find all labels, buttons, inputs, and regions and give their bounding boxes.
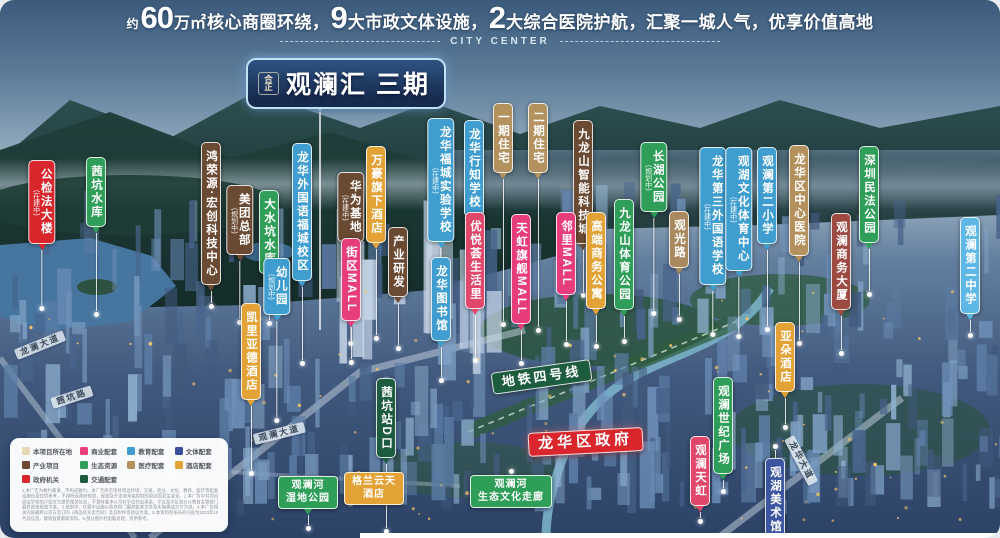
map-pin-longhua-fucheng-school: 龙华福城实验学校(在建中) <box>427 118 454 265</box>
anchor-dot-icon <box>783 425 788 430</box>
map-pin-longhua-foreign-lang-fucheng: 龙华外国语福城校区 <box>292 143 312 367</box>
map-label-rainbow-flagship-mall: 天虹旗舰MALL <box>511 214 531 324</box>
map-pin-guanhu-culture-sports-center: 观湖文化体育中心(在建中) <box>725 147 752 340</box>
headline-seg-6: 2 <box>489 2 505 33</box>
map-label-youyuehui-life: 优悦荟生活里 <box>465 212 485 309</box>
legend-label: 生态资源 <box>91 460 117 470</box>
map-label-guanlan-business-tower: 观澜商务大厦 <box>831 213 851 310</box>
legend-label: 教育配套 <box>138 446 164 456</box>
legend-item-3: 文体配套 <box>175 446 218 456</box>
anchor-dot-icon <box>968 333 973 338</box>
map-label-block-mall: 街区MALL <box>341 238 361 321</box>
map-label-qiankeng-station-exit-d: 茜坑站D口 <box>376 378 396 458</box>
leader-line <box>251 406 252 470</box>
map-label-kindergarten: 幼儿园(规划中) <box>263 258 290 315</box>
legend-label: 本项目所在地 <box>33 446 72 456</box>
leader-line <box>351 327 352 359</box>
legend-item-0: 本项目所在地 <box>22 446 76 456</box>
leader-line <box>799 262 800 340</box>
bottom-strip <box>360 533 1000 538</box>
map-label-changhu-park: 长湖公园(规划中) <box>640 142 667 212</box>
banner-leader-line <box>319 112 321 330</box>
map-label-qiankeng-reservoir: 茜坑水库 <box>86 157 106 227</box>
anchor-dot-icon <box>737 334 742 339</box>
legend-label: 交通配套 <box>91 474 117 484</box>
anchor-dot-icon <box>564 342 569 347</box>
aerial-map: 约60万㎡核心商圈环绕，9大市政文体设施，2大综合医院护航，汇聚一城人气，优享价… <box>0 0 1000 538</box>
anchor-dot-icon <box>396 346 401 351</box>
leader-line <box>441 347 442 377</box>
legend-item-6: 医疗配套 <box>127 460 170 470</box>
anchor-dot-icon <box>765 327 770 332</box>
map-pin-rainbow-flagship-mall: 天虹旗舰MALL <box>511 214 531 367</box>
headline-seg-5: 大市政文体设施， <box>348 8 488 33</box>
anchor-dot-icon <box>209 304 214 309</box>
legend-item-5: 生态资源 <box>80 460 123 470</box>
leader-line <box>583 250 584 292</box>
anchor-dot-icon <box>698 519 703 524</box>
headline-seg-1: 60 <box>141 2 173 33</box>
legend-label: 政府机关 <box>33 474 59 484</box>
leader-line <box>42 250 43 305</box>
map-label-meituan-hq: 美团总部(规划中) <box>226 185 253 255</box>
legend-label: 医疗配套 <box>138 460 164 470</box>
leader-line <box>503 179 504 321</box>
leader-line <box>775 450 776 458</box>
headline-seg-3: 核心商圈环绕， <box>207 8 330 33</box>
leader-line <box>970 320 971 332</box>
legend-panel: 本项目所在地商业配套教育配套文体配套产业项目生态资源医疗配套酒店配套政府机关交通… <box>10 438 228 532</box>
map-label-guanhu-art-museum: 观湖美术馆 <box>765 458 785 538</box>
legend-swatch-icon <box>22 475 30 483</box>
legend-swatch-icon <box>80 447 88 455</box>
headline: 约60万㎡核心商圈环绕，9大市政文体设施，2大综合医院护航，汇聚一城人气，优享价… <box>0 2 1000 33</box>
legend-item-2: 教育配套 <box>127 446 170 456</box>
anchor-dot-icon <box>519 361 524 366</box>
map-label-guanlan-2nd-middle: 观澜第二中学 <box>960 217 980 314</box>
map-label-shenzhen-minfa-park: 深圳民法公园 <box>859 146 879 243</box>
anchor-dot-icon <box>711 332 716 337</box>
anchor-dot-icon <box>797 341 802 346</box>
anchor-dot-icon <box>773 444 778 449</box>
leader-line <box>376 249 377 335</box>
headline-seg-4: 9 <box>331 2 347 33</box>
leader-line <box>96 233 97 311</box>
anchor-dot-icon <box>509 469 514 474</box>
map-label-kyriad-hotel: 凯里亚德酒店 <box>241 303 261 400</box>
leader-line <box>475 315 476 357</box>
map-label-longhua-foreign-lang-fucheng: 龙华外国语福城校区 <box>292 143 312 281</box>
map-label-phase1-residence: 一期住宅 <box>493 103 513 173</box>
anchor-dot-icon <box>652 311 657 316</box>
leader-line <box>538 179 539 327</box>
map-label-linli-mall: 邻里MALL <box>556 212 576 295</box>
legend-swatch-icon <box>22 447 30 455</box>
legend-swatch-icon <box>80 475 88 483</box>
anchor-dot-icon <box>306 526 311 531</box>
map-label-longhua-xingzhi-school: 龙华行知学校 <box>464 120 484 217</box>
map-label-guanlan-rainbow: 观澜天虹 <box>690 436 710 506</box>
leader-line <box>723 480 724 488</box>
map-pin-guanlan-2nd-middle: 观澜第二中学 <box>960 217 980 339</box>
anchor-dot-icon <box>581 293 586 298</box>
anchor-dot-icon <box>374 336 379 341</box>
map-pin-kindergarten: 幼儿园(规划中) <box>263 258 290 424</box>
leader-line <box>700 512 701 518</box>
map-pin-atour-hotel: 亚朵酒店 <box>775 322 795 431</box>
leader-line <box>739 277 740 333</box>
map-label-longhua-central-hospital: 龙华区中心医院 <box>789 145 809 256</box>
map-pin-changhu-park: 长湖公园(规划中) <box>640 142 667 317</box>
map-label-huawei-base: 华为基地(在建中) <box>337 172 364 242</box>
brand-logo: 合正 <box>258 72 279 95</box>
leader-line <box>624 316 625 338</box>
map-label-industry-rd: 产业研发 <box>388 227 408 297</box>
legend-item-1: 商业配套 <box>80 446 123 456</box>
anchor-dot-icon <box>249 471 254 476</box>
map-pin-guanlan-2nd-primary: 观澜第二小学 <box>757 147 777 333</box>
map-pin-guanlan-rainbow: 观澜天虹 <box>690 436 710 525</box>
leader-line <box>841 316 842 350</box>
anchor-dot-icon <box>622 339 627 344</box>
leader-line <box>302 287 303 360</box>
anchor-dot-icon <box>536 328 541 333</box>
leader-line <box>277 321 278 417</box>
map-pin-guanlan-river-wetland-park: 观澜河 湿地公园 <box>278 476 338 532</box>
map-pin-kyriad-hotel: 凯里亚德酒店 <box>241 303 261 477</box>
map-label-longhua-library: 龙华图书馆 <box>431 257 451 341</box>
anchor-dot-icon <box>40 306 45 311</box>
map-pin-gongjianfa-building: 公检法大楼(在建中) <box>28 160 55 312</box>
headline-seg-7: 大综合医院护航，汇聚一城人气，优享价值高地 <box>506 8 874 33</box>
map-pin-guanlan-river-eco-corridor: 观澜河 生态文化走廊 <box>470 468 552 508</box>
legend-item-9: 交通配套 <box>80 474 123 484</box>
leader-line <box>398 303 399 345</box>
legend-swatch-icon <box>127 461 135 469</box>
anchor-dot-icon <box>275 418 280 423</box>
anchor-dot-icon <box>839 351 844 356</box>
leader-line <box>521 330 522 360</box>
leader-line <box>211 291 212 303</box>
map-pin-shenzhen-minfa-park: 深圳民法公园 <box>859 146 879 298</box>
map-label-guanlan-century-plaza: 观澜世纪广场 <box>713 377 733 474</box>
anchor-dot-icon <box>94 312 99 317</box>
map-pin-linli-mall: 邻里MALL <box>556 212 576 348</box>
map-label-guanlan-2nd-primary: 观澜第二小学 <box>757 147 777 244</box>
leader-line <box>596 315 597 343</box>
map-pin-guanhu-art-museum: 观湖美术馆 <box>765 443 785 538</box>
subtitle-row: CITY CENTER <box>0 36 1000 47</box>
map-label-longhua-3rd-foreign-school: 龙华第三外国语学校(在建中) <box>699 147 726 285</box>
map-pin-longhua-central-hospital: 龙华区中心医院 <box>789 145 809 347</box>
map-pin-marriott-hotel: 万豪旗下酒店 <box>366 146 386 342</box>
legend-swatch-icon <box>22 461 30 469</box>
anchor-dot-icon <box>300 361 305 366</box>
headline-seg-0: 约 <box>126 15 138 32</box>
leader-line <box>785 398 786 424</box>
leader-line <box>679 274 680 316</box>
subtitle-dash-left <box>280 41 440 42</box>
legend-label: 产业项目 <box>33 460 59 470</box>
legend-swatch-icon <box>127 447 135 455</box>
project-title: 观澜汇 三期 <box>286 65 430 101</box>
legend-label: 文体配套 <box>186 446 212 456</box>
map-pin-guanguang-road: 观光路 <box>669 211 689 323</box>
map-pin-qiankeng-reservoir: 茜坑水库 <box>86 157 106 318</box>
headline-seg-2: 万㎡ <box>174 9 206 33</box>
anchor-dot-icon <box>677 317 682 322</box>
legend-label: 酒店配套 <box>186 460 212 470</box>
map-pin-guanlan-business-tower: 观澜商务大厦 <box>831 213 851 357</box>
legend-item-8: 政府机关 <box>22 474 76 484</box>
map-pin-jiulongshan-sports-park: 九龙山体育公园 <box>614 199 634 345</box>
anchor-dot-icon <box>349 360 354 365</box>
legend-item-4: 产业项目 <box>22 460 76 470</box>
map-pin-guanlan-century-plaza: 观澜世纪广场 <box>713 377 733 495</box>
legend-swatch-icon <box>80 461 88 469</box>
leader-line <box>767 250 768 326</box>
map-label-grand-skylight-hotel: 格兰云天 酒店 <box>344 472 404 505</box>
legend-swatch-icon <box>175 461 183 469</box>
legend-swatch-icon <box>175 447 183 455</box>
subtitle-dash-right <box>560 41 720 42</box>
disclaimer-text: 1.本广告为要约邀请，不构成要约。本广告所示项目周边环境、交通、商业、文化、教育… <box>22 489 218 523</box>
map-label-longhua-fucheng-school: 龙华福城实验学校(在建中) <box>427 118 454 242</box>
map-pin-block-mall: 街区MALL <box>341 238 361 366</box>
leader-line <box>869 249 870 291</box>
map-label-guanlan-river-wetland-park: 观澜河 湿地公园 <box>278 476 338 509</box>
map-label-atour-hotel: 亚朵酒店 <box>775 322 795 392</box>
anchor-dot-icon <box>721 489 726 494</box>
anchor-dot-icon <box>501 322 506 327</box>
leader-line <box>713 291 714 331</box>
map-pin-industry-rd: 产业研发 <box>388 227 408 352</box>
map-pin-qiankeng-station-exit-d: 茜坑站D口 <box>376 378 396 535</box>
anchor-dot-icon <box>473 358 478 363</box>
map-pin-longhua-library: 龙华图书馆 <box>431 257 451 384</box>
map-label-guanhu-culture-sports-center: 观湖文化体育中心(在建中) <box>725 147 752 271</box>
map-pin-longhua-3rd-foreign-school: 龙华第三外国语学校(在建中) <box>699 147 726 338</box>
map-label-phase2-residence: 二期住宅 <box>528 103 548 173</box>
subtitle-text: CITY CENTER <box>450 36 550 47</box>
leader-line <box>654 218 655 310</box>
anchor-dot-icon <box>594 344 599 349</box>
map-label-marriott-hotel: 万豪旗下酒店 <box>366 146 386 243</box>
map-label-hongrongyuan-tech-center: 鸿荣源·宏创科技中心 <box>201 142 221 285</box>
map-label-jiulongshan-sports-park: 九龙山体育公园 <box>614 199 634 310</box>
legend-item-7: 酒店配套 <box>175 460 218 470</box>
project-banner: 合正 观澜汇 三期 <box>246 58 446 109</box>
map-pin-grand-skylight-hotel: 格兰云天 酒店 <box>344 472 404 505</box>
map-pin-hongrongyuan-tech-center: 鸿荣源·宏创科技中心 <box>201 142 221 310</box>
leader-line <box>308 515 309 525</box>
map-label-business-apartment: 高端商务公寓 <box>586 212 606 309</box>
map-pin-youyuehui-life: 优悦荟生活里 <box>465 212 485 364</box>
map-pin-business-apartment: 高端商务公寓 <box>586 212 606 350</box>
anchor-dot-icon <box>867 292 872 297</box>
anchor-dot-icon <box>439 378 444 383</box>
map-label-guanguang-road: 观光路 <box>669 211 689 268</box>
legend-label: 商业配套 <box>91 446 117 456</box>
map-label-guanlan-river-eco-corridor: 观澜河 生态文化走廊 <box>470 475 552 508</box>
leader-line <box>566 301 567 341</box>
map-label-gongjianfa-building: 公检法大楼(在建中) <box>28 160 55 244</box>
